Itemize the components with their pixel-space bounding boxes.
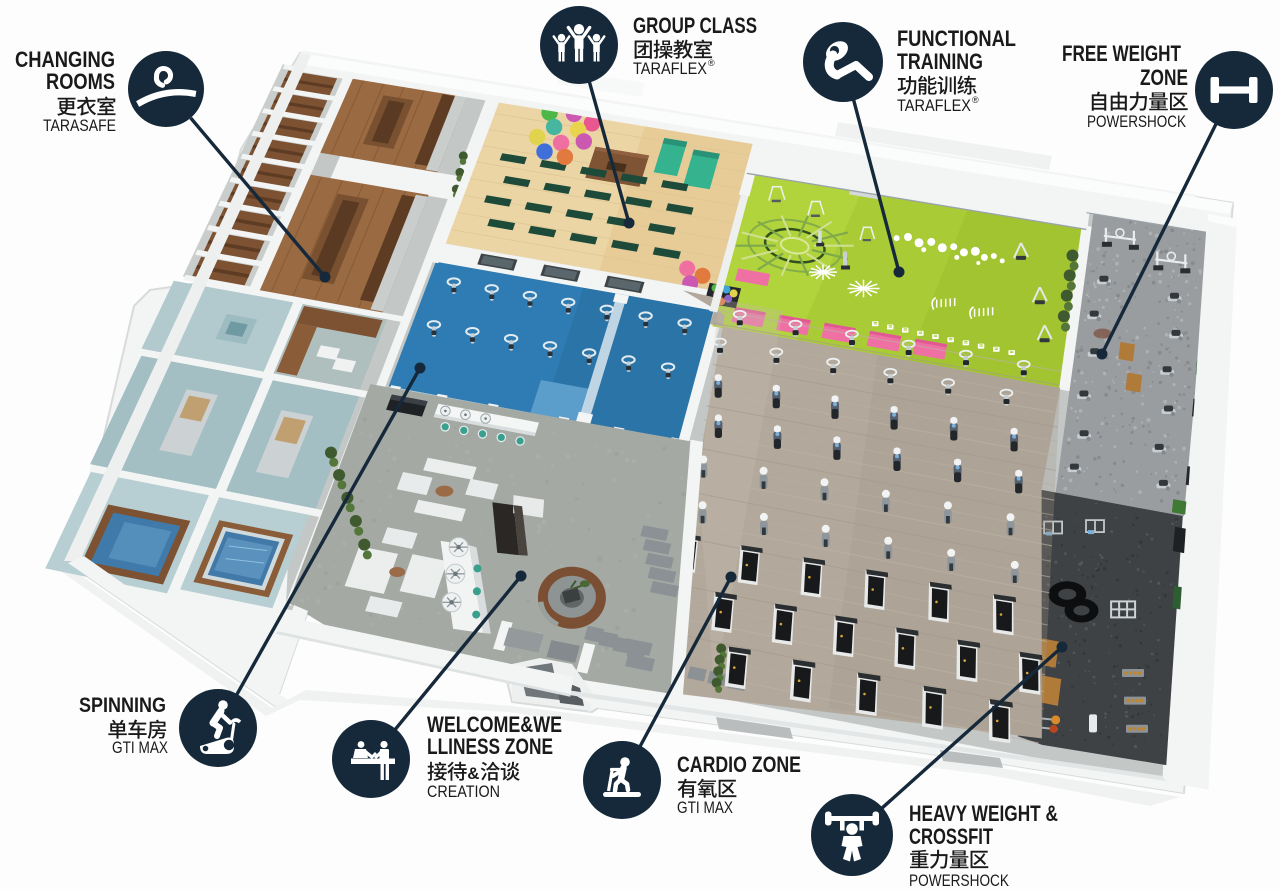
svg-text:FUNCTIONAL: FUNCTIONAL xyxy=(897,26,1016,51)
svg-text:&: & xyxy=(467,764,479,783)
svg-text:SPINNING: SPINNING xyxy=(79,694,166,717)
svg-text:FREE WEIGHT: FREE WEIGHT xyxy=(1062,41,1181,66)
svg-text:POWERSHOCK: POWERSHOCK xyxy=(909,871,1010,889)
svg-text:TRAINING: TRAINING xyxy=(897,49,983,74)
svg-text:CREATION: CREATION xyxy=(427,782,500,801)
svg-text:ROOMS: ROOMS xyxy=(46,69,115,94)
svg-text:TARAFLEX: TARAFLEX xyxy=(633,59,707,78)
svg-text:GTI MAX: GTI MAX xyxy=(677,798,733,817)
svg-text:GTI MAX: GTI MAX xyxy=(112,738,168,757)
svg-text:CROSSFIT: CROSSFIT xyxy=(909,824,993,849)
svg-text:GROUP CLASS: GROUP CLASS xyxy=(633,13,757,38)
svg-text:®: ® xyxy=(708,58,715,68)
svg-text:HEAVY WEIGHT &: HEAVY WEIGHT & xyxy=(909,801,1058,826)
svg-text:ZONE: ZONE xyxy=(1140,65,1188,90)
svg-text:LLINESS ZONE: LLINESS ZONE xyxy=(427,734,553,759)
svg-text:®: ® xyxy=(972,95,979,105)
svg-text:TARASAFE: TARASAFE xyxy=(43,116,116,135)
svg-text:POWERSHOCK: POWERSHOCK xyxy=(1087,112,1187,131)
svg-text:TARAFLEX: TARAFLEX xyxy=(897,96,971,115)
svg-text:CARDIO ZONE: CARDIO ZONE xyxy=(677,752,801,777)
